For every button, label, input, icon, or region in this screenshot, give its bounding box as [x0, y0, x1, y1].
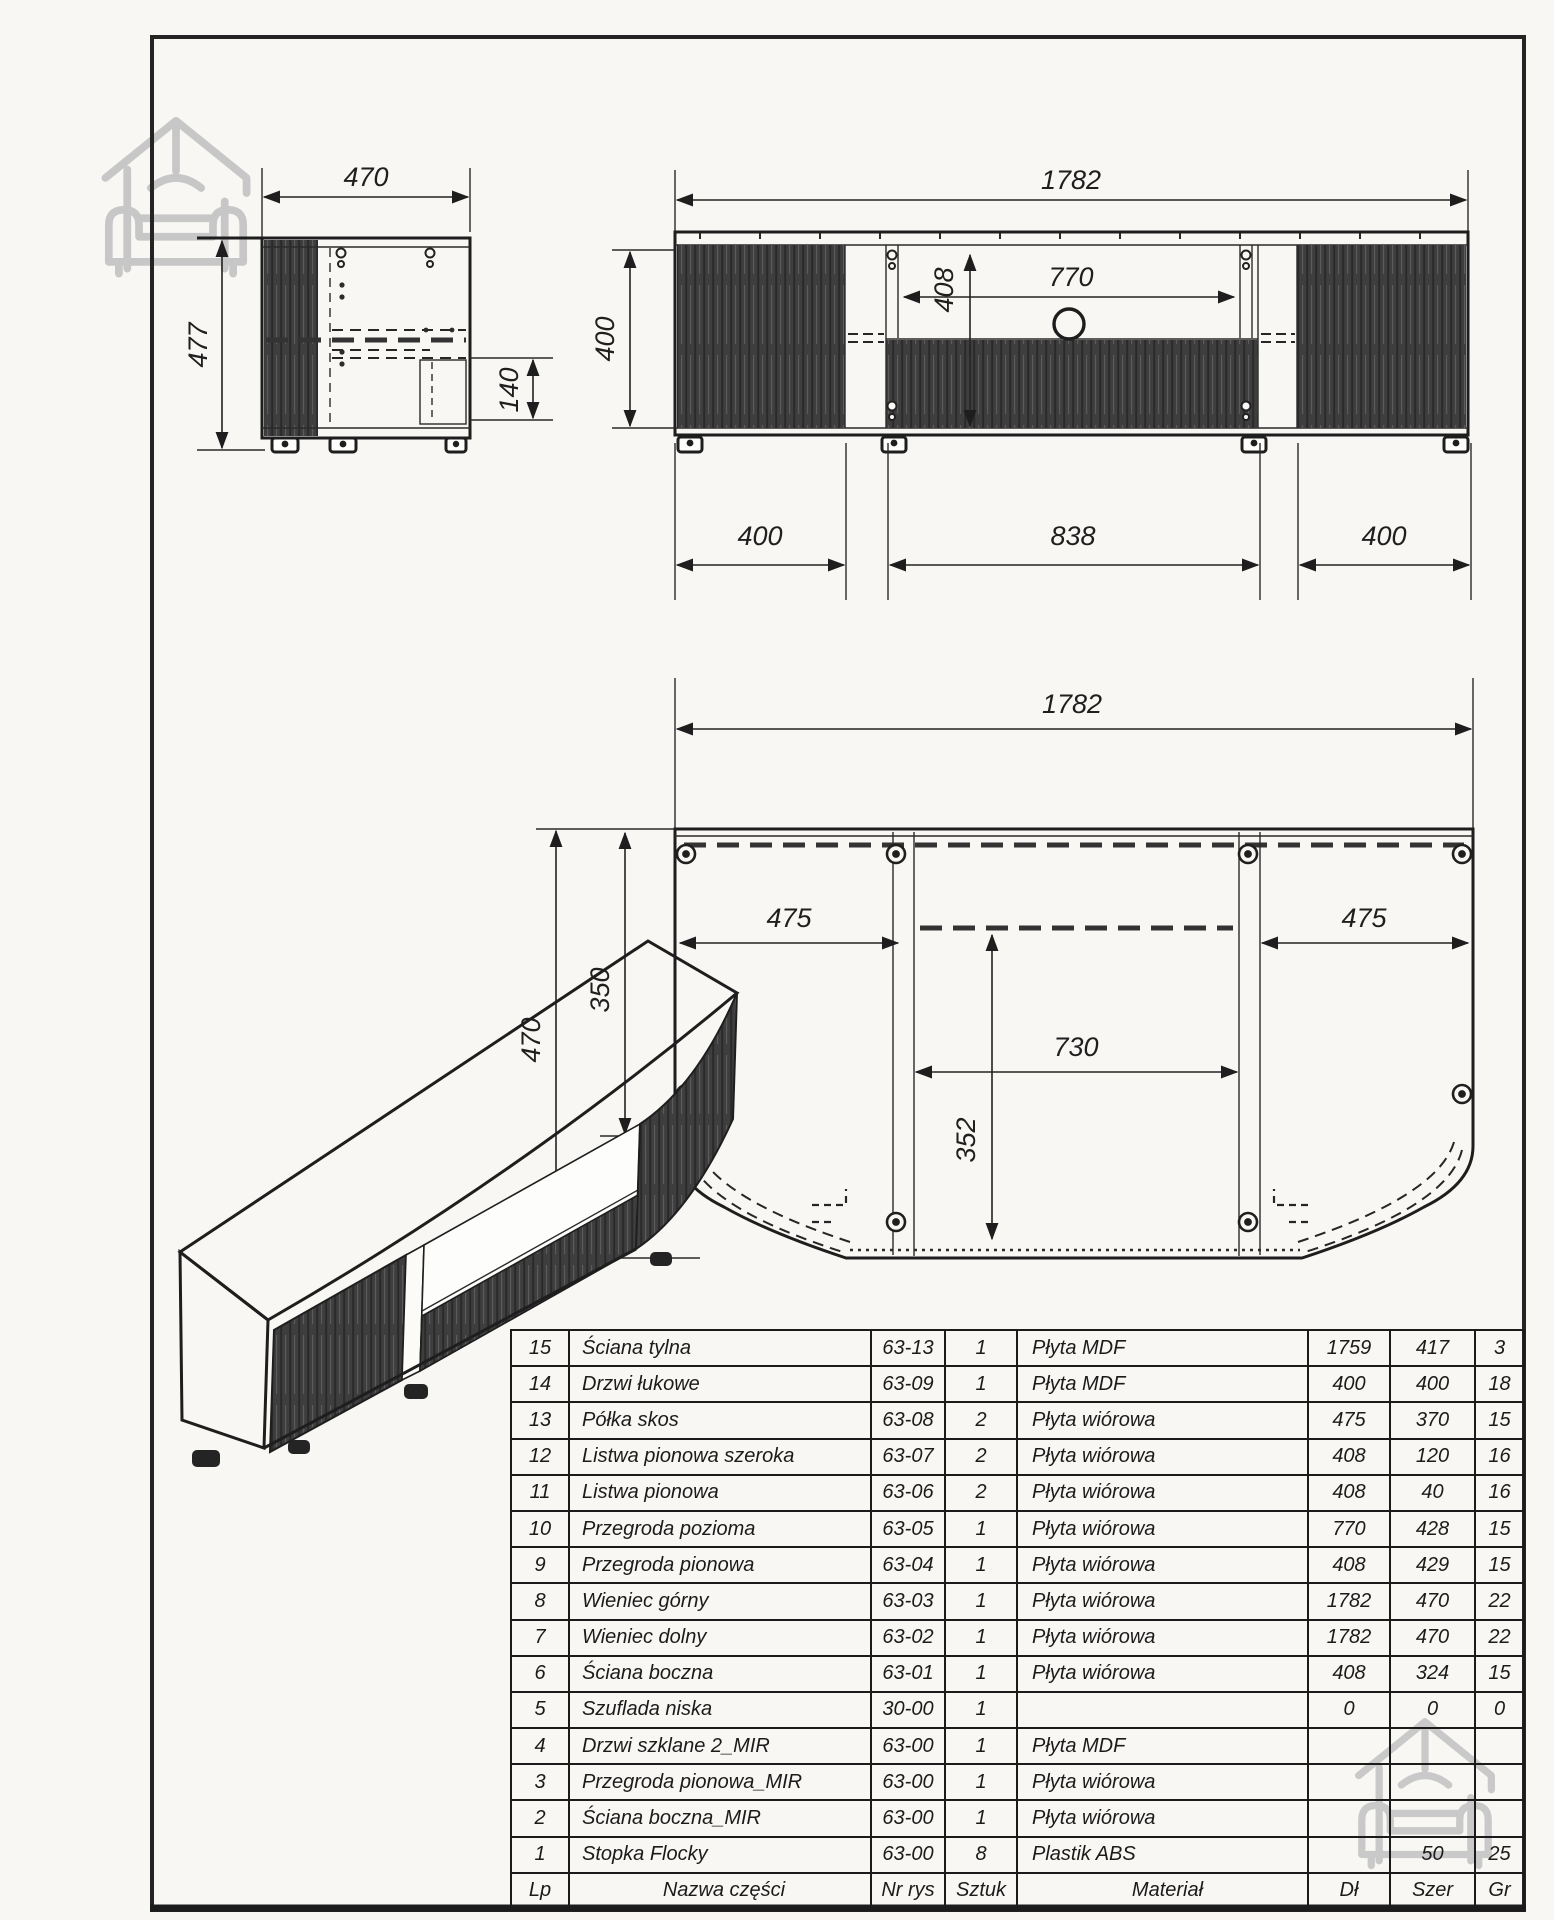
- cell-nr: 63-07: [871, 1439, 945, 1475]
- cell-nr: 63-00: [871, 1764, 945, 1800]
- cell-name: Stopka Flocky: [569, 1837, 871, 1873]
- cell-wid: 470: [1390, 1583, 1475, 1619]
- cell-material: Płyta wiórowa: [1017, 1511, 1308, 1547]
- cell-wid: 324: [1390, 1656, 1475, 1692]
- header-name: Nazwa części: [569, 1873, 871, 1909]
- cell-nr: 63-04: [871, 1547, 945, 1583]
- cell-material: [1017, 1692, 1308, 1728]
- table-row: 1 Stopka Flocky 63-00 8 Plastik ABS 50 2…: [511, 1837, 1524, 1873]
- cell-thk: 22: [1475, 1583, 1524, 1619]
- cell-lp: 2: [511, 1800, 569, 1836]
- table-row: 3 Przegroda pionowa_MIR 63-00 1 Płyta wi…: [511, 1764, 1524, 1800]
- table-row: 15 Ściana tylna 63-13 1 Płyta MDF 1759 4…: [511, 1330, 1524, 1366]
- plan-left-shelf-dim: 475: [766, 903, 812, 933]
- cell-qty: 1: [945, 1366, 1017, 1402]
- cell-nr: 63-06: [871, 1475, 945, 1511]
- hinge-marks: [337, 249, 435, 268]
- cell-wid: 370: [1390, 1402, 1475, 1438]
- cell-qty: 1: [945, 1511, 1017, 1547]
- cell-material: Plastik ABS: [1017, 1837, 1308, 1873]
- cell-nr: 63-00: [871, 1800, 945, 1836]
- header-len: Dł: [1308, 1873, 1390, 1909]
- cell-nr: 63-01: [871, 1656, 945, 1692]
- right-door-panel: [1297, 245, 1466, 428]
- cell-wid: 40: [1390, 1475, 1475, 1511]
- front-right-door-dim: 400: [1361, 521, 1406, 551]
- cell-qty: 1: [945, 1330, 1017, 1366]
- cell-len: 408: [1308, 1656, 1390, 1692]
- cell-lp: 4: [511, 1728, 569, 1764]
- side-feet: [272, 438, 466, 452]
- cell-len: [1308, 1800, 1390, 1836]
- house-sofa-watermark-top-left: [105, 121, 246, 274]
- cell-lp: 1: [511, 1837, 569, 1873]
- cell-thk: 25: [1475, 1837, 1524, 1873]
- cell-qty: 2: [945, 1439, 1017, 1475]
- cell-len: 408: [1308, 1475, 1390, 1511]
- table-row: 12 Listwa pionowa szeroka 63-07 2 Płyta …: [511, 1439, 1524, 1475]
- cell-name: Ściana boczna: [569, 1656, 871, 1692]
- header-thk: Gr: [1475, 1873, 1524, 1909]
- cell-lp: 5: [511, 1692, 569, 1728]
- cell-name: Półka skos: [569, 1402, 871, 1438]
- front-total-width-dim: 1782: [1041, 165, 1101, 195]
- table-row: 5 Szuflada niska 30-00 1 0 0 0: [511, 1692, 1524, 1728]
- front-bottom-dims: 400 838 400: [675, 443, 1471, 600]
- cell-len: 0: [1308, 1692, 1390, 1728]
- cell-wid: 400: [1390, 1366, 1475, 1402]
- cell-qty: 1: [945, 1728, 1017, 1764]
- cell-len: [1308, 1764, 1390, 1800]
- cell-material: Płyta wiórowa: [1017, 1547, 1308, 1583]
- cell-nr: 63-00: [871, 1728, 945, 1764]
- cell-wid: 417: [1390, 1330, 1475, 1366]
- cell-qty: 1: [945, 1547, 1017, 1583]
- cell-name: Przegroda pozioma: [569, 1511, 871, 1547]
- cell-name: Przegroda pionowa_MIR: [569, 1764, 871, 1800]
- parts-list-table: 15 Ściana tylna 63-13 1 Płyta MDF 1759 4…: [510, 1329, 1525, 1910]
- cell-material: Płyta wiórowa: [1017, 1583, 1308, 1619]
- cell-material: Płyta wiórowa: [1017, 1620, 1308, 1656]
- cell-thk: 18: [1475, 1366, 1524, 1402]
- cell-name: Przegroda pionowa: [569, 1547, 871, 1583]
- front-view: 1782: [590, 165, 1471, 600]
- front-body-height-dim: 400: [590, 316, 620, 361]
- side-view: 470 477: [183, 162, 553, 452]
- cell-qty: 1: [945, 1764, 1017, 1800]
- cell-thk: [1475, 1728, 1524, 1764]
- front-inner-height-dim: 408: [929, 267, 959, 312]
- side-width-dim: 470: [343, 162, 388, 192]
- cell-qty: 8: [945, 1837, 1017, 1873]
- cell-lp: 12: [511, 1439, 569, 1475]
- cell-name: Wieniec górny: [569, 1583, 871, 1619]
- table-row: 14 Drzwi łukowe 63-09 1 Płyta MDF 400 40…: [511, 1366, 1524, 1402]
- cell-thk: 16: [1475, 1475, 1524, 1511]
- front-middle-dim: 838: [1050, 521, 1095, 551]
- cell-len: [1308, 1837, 1390, 1873]
- cell-name: Listwa pionowa: [569, 1475, 871, 1511]
- cell-wid: 470: [1390, 1620, 1475, 1656]
- cell-thk: [1475, 1764, 1524, 1800]
- cell-qty: 1: [945, 1692, 1017, 1728]
- cell-material: Płyta wiórowa: [1017, 1656, 1308, 1692]
- cell-wid: 429: [1390, 1547, 1475, 1583]
- cell-material: Płyta wiórowa: [1017, 1475, 1308, 1511]
- side-drawer-dim: 140: [494, 367, 524, 412]
- plan-niche-depth-dim: 352: [951, 1117, 981, 1162]
- header-material: Materiał: [1017, 1873, 1308, 1909]
- cell-name: Listwa pionowa szeroka: [569, 1439, 871, 1475]
- cell-lp: 6: [511, 1656, 569, 1692]
- cell-material: Płyta wiórowa: [1017, 1764, 1308, 1800]
- cell-nr: 63-02: [871, 1620, 945, 1656]
- header-wid: Szer: [1390, 1873, 1475, 1909]
- cell-len: 475: [1308, 1402, 1390, 1438]
- cell-qty: 1: [945, 1656, 1017, 1692]
- cell-thk: 16: [1475, 1439, 1524, 1475]
- table-row: 11 Listwa pionowa 63-06 2 Płyta wiórowa …: [511, 1475, 1524, 1511]
- cell-len: 408: [1308, 1439, 1390, 1475]
- header-lp: Lp: [511, 1873, 569, 1909]
- cell-lp: 13: [511, 1402, 569, 1438]
- top-edge-ticks: [700, 233, 1420, 239]
- cell-len: 408: [1308, 1547, 1390, 1583]
- cell-nr: 63-00: [871, 1837, 945, 1873]
- cell-qty: 1: [945, 1800, 1017, 1836]
- cell-nr: 30-00: [871, 1692, 945, 1728]
- cell-name: Ściana boczna_MIR: [569, 1800, 871, 1836]
- cell-lp: 10: [511, 1511, 569, 1547]
- iso-left-door: [270, 1255, 406, 1452]
- left-door-panel: [677, 245, 845, 428]
- header-nr: Nr rys: [871, 1873, 945, 1909]
- cell-material: Płyta MDF: [1017, 1330, 1308, 1366]
- table-row: 6 Ściana boczna 63-01 1 Płyta wiórowa 40…: [511, 1656, 1524, 1692]
- cell-len: 770: [1308, 1511, 1390, 1547]
- screw-dots: [339, 282, 454, 366]
- cell-qty: 2: [945, 1475, 1017, 1511]
- cell-nr: 63-13: [871, 1330, 945, 1366]
- hinge-bracket-marks: [812, 1189, 1308, 1222]
- cell-thk: 22: [1475, 1620, 1524, 1656]
- cell-qty: 2: [945, 1402, 1017, 1438]
- table-row: 10 Przegroda pozioma 63-05 1 Płyta wióro…: [511, 1511, 1524, 1547]
- plan-total-width-dim: 1782: [1042, 689, 1102, 719]
- cell-nr: 63-05: [871, 1511, 945, 1547]
- cell-lp: 14: [511, 1366, 569, 1402]
- cell-wid: [1390, 1728, 1475, 1764]
- plan-right-shelf-dim: 475: [1341, 903, 1387, 933]
- cell-wid: 120: [1390, 1439, 1475, 1475]
- cell-lp: 9: [511, 1547, 569, 1583]
- cell-name: Szuflada niska: [569, 1692, 871, 1728]
- cell-thk: 15: [1475, 1402, 1524, 1438]
- cell-qty: 1: [945, 1583, 1017, 1619]
- cell-len: 400: [1308, 1366, 1390, 1402]
- cell-len: 1782: [1308, 1583, 1390, 1619]
- cell-material: Płyta wiórowa: [1017, 1439, 1308, 1475]
- front-feet: [678, 437, 1468, 452]
- cell-material: Płyta MDF: [1017, 1728, 1308, 1764]
- cell-material: Płyta MDF: [1017, 1366, 1308, 1402]
- front-niche-width-dim: 770: [1048, 262, 1093, 292]
- table-row: 13 Półka skos 63-08 2 Płyta wiórowa 475 …: [511, 1402, 1524, 1438]
- front-left-door-dim: 400: [737, 521, 782, 551]
- cell-thk: 0: [1475, 1692, 1524, 1728]
- drawer-front-panel: [886, 340, 1258, 428]
- cell-qty: 1: [945, 1620, 1017, 1656]
- cell-wid: [1390, 1764, 1475, 1800]
- table-row: 9 Przegroda pionowa 63-04 1 Płyta wiórow…: [511, 1547, 1524, 1583]
- cell-thk: 15: [1475, 1547, 1524, 1583]
- cell-len: 1759: [1308, 1330, 1390, 1366]
- cell-wid: 0: [1390, 1692, 1475, 1728]
- cell-wid: [1390, 1800, 1475, 1836]
- cell-lp: 8: [511, 1583, 569, 1619]
- table-row: 8 Wieniec górny 63-03 1 Płyta wiórowa 17…: [511, 1583, 1524, 1619]
- cell-wid: 428: [1390, 1511, 1475, 1547]
- cell-len: [1308, 1728, 1390, 1764]
- cell-nr: 63-03: [871, 1583, 945, 1619]
- cell-lp: 7: [511, 1620, 569, 1656]
- cell-nr: 63-09: [871, 1366, 945, 1402]
- cell-name: Wieniec dolny: [569, 1620, 871, 1656]
- cell-thk: [1475, 1800, 1524, 1836]
- cell-len: 1782: [1308, 1620, 1390, 1656]
- cell-material: Płyta wiórowa: [1017, 1800, 1308, 1836]
- scanned-drawing-page: 470 477: [0, 0, 1554, 1920]
- cell-name: Drzwi szklane 2_MIR: [569, 1728, 871, 1764]
- cell-lp: 15: [511, 1330, 569, 1366]
- iso-right-door: [636, 993, 737, 1249]
- side-height-dim: 477: [183, 321, 213, 367]
- table-row: 7 Wieniec dolny 63-02 1 Płyta wiórowa 17…: [511, 1620, 1524, 1656]
- cell-wid: 50: [1390, 1837, 1475, 1873]
- cell-lp: 11: [511, 1475, 569, 1511]
- cell-material: Płyta wiórowa: [1017, 1402, 1308, 1438]
- cell-thk: 15: [1475, 1656, 1524, 1692]
- cell-nr: 63-08: [871, 1402, 945, 1438]
- cell-name: Ściana tylna: [569, 1330, 871, 1366]
- plan-niche-width-dim: 730: [1053, 1032, 1098, 1062]
- cable-hole: [1054, 309, 1084, 339]
- table-header-row: Lp Nazwa części Nr rys Sztuk Materiał Dł…: [511, 1873, 1524, 1909]
- cell-name: Drzwi łukowe: [569, 1366, 871, 1402]
- header-qty: Sztuk: [945, 1873, 1017, 1909]
- cell-thk: 15: [1475, 1511, 1524, 1547]
- table-row: 2 Ściana boczna_MIR 63-00 1 Płyta wiórow…: [511, 1800, 1524, 1836]
- cell-lp: 3: [511, 1764, 569, 1800]
- cell-thk: 3: [1475, 1330, 1524, 1366]
- table-row: 4 Drzwi szklane 2_MIR 63-00 1 Płyta MDF: [511, 1728, 1524, 1764]
